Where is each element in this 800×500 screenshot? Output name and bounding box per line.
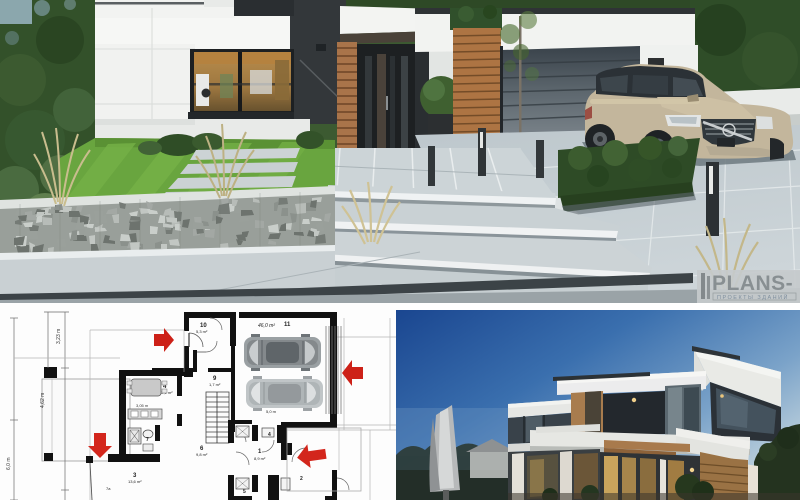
svg-text:6,0 m: 6,0 m <box>6 457 12 470</box>
svg-text:5: 5 <box>243 489 246 495</box>
svg-text:5,3 m²: 5,3 m² <box>196 329 208 334</box>
svg-text:ПРОЕКТЫ ЗДАНИЙ: ПРОЕКТЫ ЗДАНИЙ <box>717 293 789 301</box>
svg-text:13,6 m²: 13,6 m² <box>128 479 142 484</box>
svg-text:5,0 m: 5,0 m <box>266 409 277 414</box>
svg-text:3,23 m: 3,23 m <box>56 329 62 344</box>
svg-text:8,9 m²: 8,9 m² <box>254 456 266 461</box>
svg-text:11: 11 <box>284 322 291 328</box>
svg-text:7: 7 <box>146 437 149 443</box>
svg-text:9,8 m²: 9,8 m² <box>196 452 208 457</box>
svg-text:3,05 m: 3,05 m <box>136 403 149 408</box>
svg-text:7a: 7a <box>106 486 111 491</box>
svg-text:2: 2 <box>300 476 303 482</box>
svg-text:46,0 m²: 46,0 m² <box>258 323 275 329</box>
svg-text:1,7 m²: 1,7 m² <box>209 382 221 387</box>
svg-text:4,62 m: 4,62 m <box>40 393 46 408</box>
svg-text:4: 4 <box>268 432 271 438</box>
svg-text:PLANS-: PLANS- <box>712 272 793 295</box>
